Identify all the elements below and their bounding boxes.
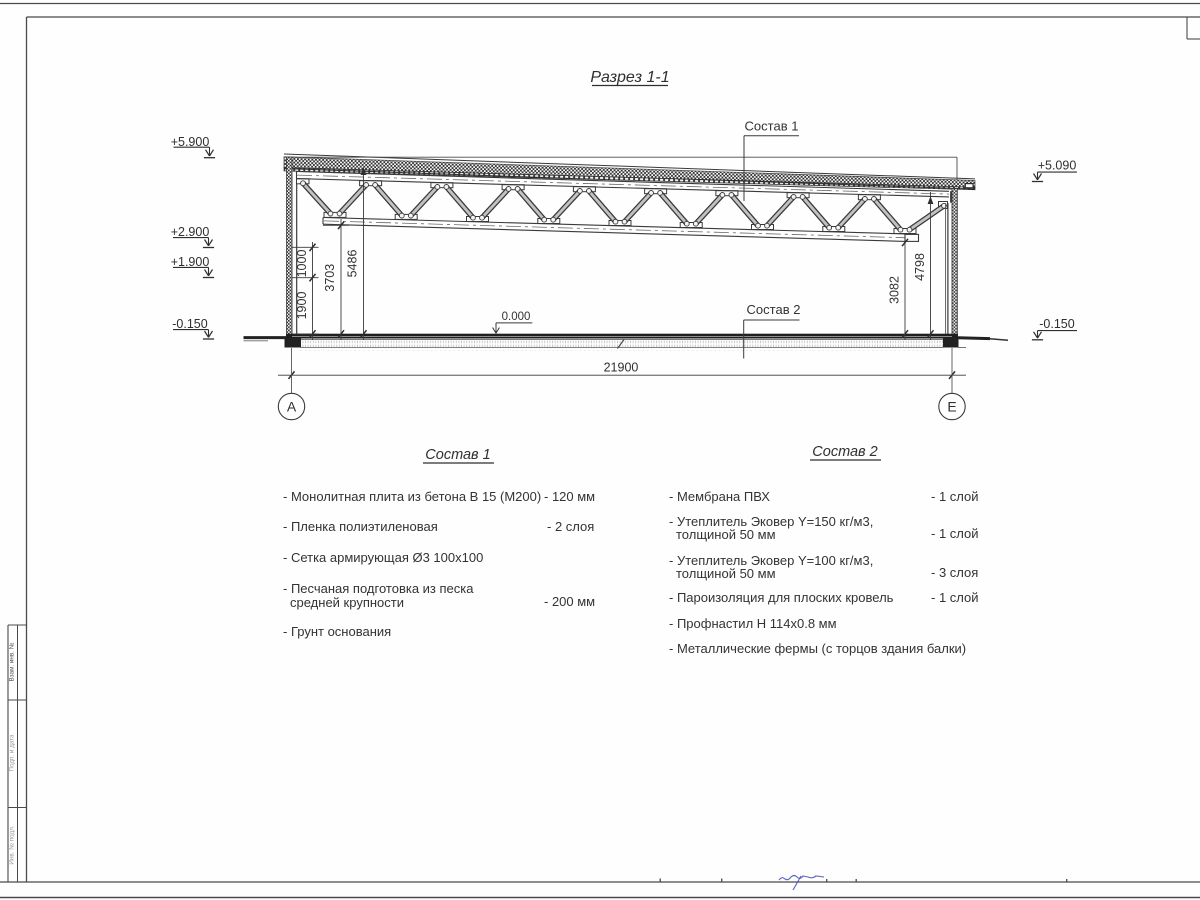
svg-text:Состав 2: Состав 2 (812, 444, 877, 460)
svg-text:Состав 2: Состав 2 (747, 302, 801, 317)
svg-text:Подп. и дата: Подп. и дата (9, 734, 16, 772)
svg-text:3082: 3082 (888, 276, 902, 304)
svg-text:+1.900: +1.900 (171, 255, 210, 269)
svg-text:3703: 3703 (323, 264, 337, 292)
svg-text:Взам. инв. №: Взам. инв. № (9, 642, 16, 681)
svg-text:Е: Е (947, 399, 956, 415)
svg-text:1000: 1000 (295, 250, 309, 278)
svg-text:0.000: 0.000 (502, 311, 531, 323)
svg-text:- Монолитная плита из бетона В: - Монолитная плита из бетона В 15 (М200) (283, 489, 541, 504)
svg-text:- Профнастил Н 114х0.8 мм: - Профнастил Н 114х0.8 мм (669, 616, 837, 631)
svg-text:- Песчаная подготовка из песка: - Песчаная подготовка из песка (283, 581, 474, 596)
svg-text:Состав 1: Состав 1 (745, 119, 799, 134)
svg-text:- Металлические фермы (с торцо: - Металлические фермы (с торцов здания б… (669, 641, 966, 656)
svg-text:-0.150: -0.150 (1039, 317, 1074, 331)
svg-text:А: А (287, 399, 297, 415)
svg-text:- Пленка полиэтиленовая: - Пленка полиэтиленовая (283, 519, 438, 534)
svg-text:+2.900: +2.900 (171, 225, 210, 239)
svg-text:- 120 мм: - 120 мм (544, 489, 595, 504)
svg-text:средней крупности: средней крупности (290, 595, 404, 610)
svg-text:толщиной 50 мм: толщиной 50 мм (676, 566, 776, 581)
svg-text:+5.090: +5.090 (1038, 159, 1077, 173)
svg-text:Инв. № подл.: Инв. № подл. (9, 825, 16, 864)
svg-text:- 200 мм: - 200 мм (544, 594, 595, 609)
svg-text:- 1 слой: - 1 слой (931, 526, 979, 541)
svg-text:- Сетка армирующая Ø3 100х100: - Сетка армирующая Ø3 100х100 (283, 550, 483, 565)
svg-text:4798: 4798 (913, 253, 927, 281)
svg-text:- 1 слой: - 1 слой (931, 489, 979, 504)
svg-text:- 1 слой: - 1 слой (931, 590, 979, 605)
svg-text:- Мембрана ПВХ: - Мембрана ПВХ (669, 489, 770, 504)
svg-text:- Пароизоляция для плоских кро: - Пароизоляция для плоских кровель (669, 590, 894, 605)
svg-text:21900: 21900 (604, 361, 639, 375)
svg-text:1900: 1900 (295, 292, 309, 320)
svg-text:Разрез 1-1: Разрез 1-1 (590, 69, 669, 86)
svg-text:- 3 слоя: - 3 слоя (931, 565, 978, 580)
svg-text:толщиной 50 мм: толщиной 50 мм (676, 527, 776, 542)
svg-text:5486: 5486 (346, 250, 360, 278)
svg-text:-0.150: -0.150 (172, 317, 207, 331)
svg-text:- Грунт основания: - Грунт основания (283, 624, 391, 639)
svg-text:Состав 1: Состав 1 (425, 447, 490, 463)
svg-text:- 2 слоя: - 2 слоя (547, 519, 594, 534)
